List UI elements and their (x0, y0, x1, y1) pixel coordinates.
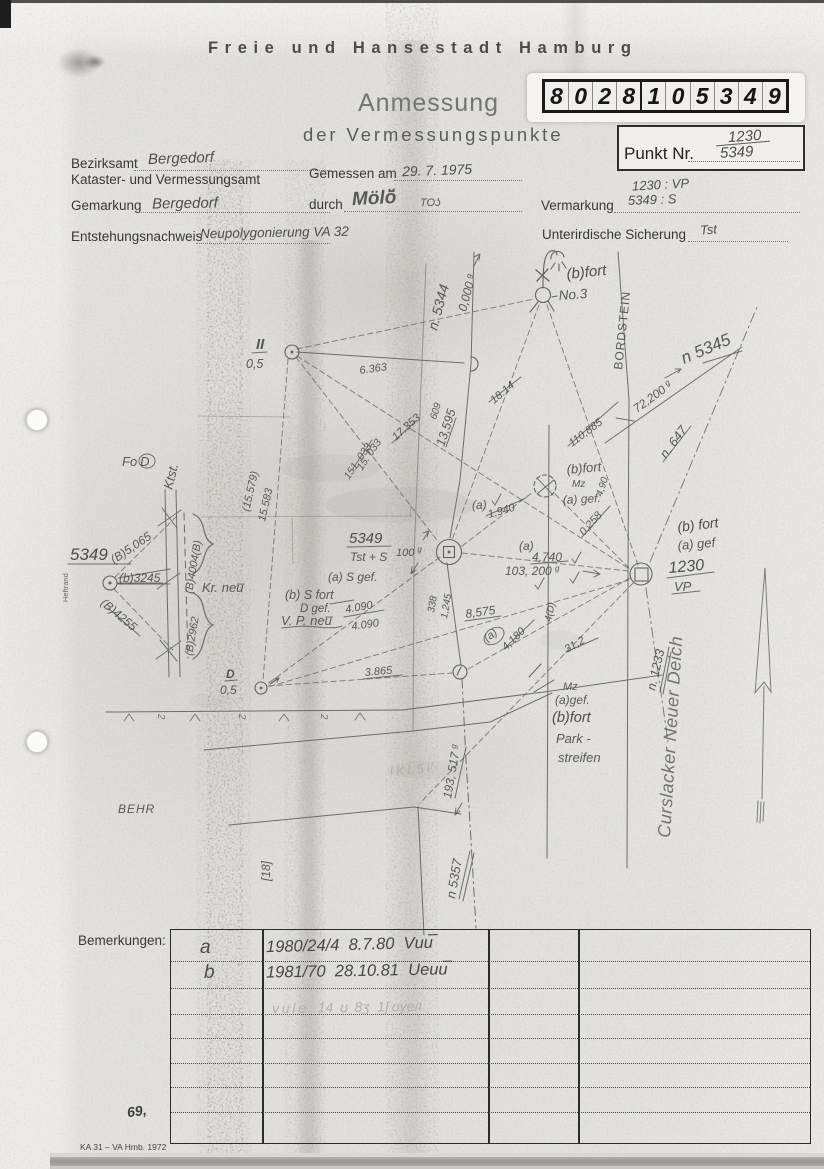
svg-text:2: 2 (318, 713, 329, 720)
svg-text:n 5357: n 5357 (443, 857, 465, 900)
svg-text:1,940: 1,940 (487, 502, 518, 521)
svg-text:No.3: No.3 (558, 286, 588, 303)
svg-text:Mz: Mz (572, 479, 585, 490)
svg-text:(b)fort: (b)fort (566, 262, 608, 283)
svg-text:15.583: 15.583 (256, 486, 275, 522)
svg-text:5349: 5349 (349, 530, 383, 547)
svg-text:D: D (226, 667, 235, 681)
svg-text:103, 200 g: 103, 200 g (505, 564, 560, 578)
svg-text:338: 338 (426, 595, 440, 614)
svg-text:Kr. neu̅: Kr. neu̅ (202, 580, 245, 595)
svg-text:(a) gef.: (a) gef. (562, 491, 601, 507)
svg-text:Tst + S: Tst + S (350, 550, 387, 564)
svg-text:(b)3245: (b)3245 (119, 571, 161, 585)
svg-text:II: II (256, 336, 265, 353)
svg-text:8,575: 8,575 (464, 603, 496, 621)
svg-text:0,258: 0,258 (577, 509, 605, 538)
svg-text:BEHR: BEHR (118, 802, 155, 816)
svg-text:Park -: Park - (556, 731, 591, 746)
svg-text:5349: 5349 (70, 545, 108, 564)
svg-text:2: 2 (155, 713, 166, 720)
svg-text:0,5: 0,5 (246, 357, 263, 371)
svg-text:n. 647: n. 647 (656, 422, 690, 461)
svg-text:4.090: 4.090 (344, 599, 374, 616)
svg-text:0,5: 0,5 (220, 683, 237, 697)
svg-text:(b) S fort: (b) S fort (285, 588, 334, 602)
svg-text:4.090: 4.090 (351, 617, 381, 633)
svg-text:VP: VP (674, 579, 692, 594)
svg-text:(15.579): (15.579) (240, 470, 261, 513)
svg-text:2: 2 (236, 713, 247, 720)
svg-text:3.865: 3.865 (364, 665, 393, 679)
svg-text:6.363: 6.363 (359, 361, 389, 377)
svg-text:1230: 1230 (668, 557, 705, 577)
svg-text:(a) gef: (a) gef (677, 535, 717, 553)
svg-text:100 g: 100 g (396, 545, 422, 559)
svg-text:BORDSTEIN: BORDSTEIN (611, 290, 633, 370)
svg-text:(b)fort: (b)fort (566, 459, 603, 477)
svg-text:Ktst.: Ktst. (160, 462, 181, 491)
svg-text:streifen: streifen (558, 750, 601, 765)
svg-text:110,885: 110,885 (567, 416, 606, 450)
svg-text:0,000 g: 0,000 g (455, 272, 478, 313)
svg-text:(B)2962: (B)2962 (183, 616, 202, 657)
svg-text:n. 5344: n. 5344 (424, 282, 452, 331)
svg-text:FoD: FoD (122, 454, 150, 469)
svg-text:1,245: 1,245 (439, 593, 454, 620)
svg-text:Mz: Mz (563, 681, 578, 693)
svg-text:(b)fort: (b)fort (552, 710, 592, 726)
svg-text:V. P. neu̅: V. P. neu̅ (281, 613, 333, 628)
svg-text:[18]: [18] (259, 860, 273, 882)
svg-text:(B)4255: (B)4255 (98, 596, 140, 634)
svg-text:4,740: 4,740 (532, 550, 562, 564)
svg-text:(a)gef.: (a)gef. (555, 693, 590, 707)
svg-text:(a) S gef.: (a) S gef. (328, 570, 377, 584)
svg-text:(b) fort: (b) fort (676, 514, 720, 535)
